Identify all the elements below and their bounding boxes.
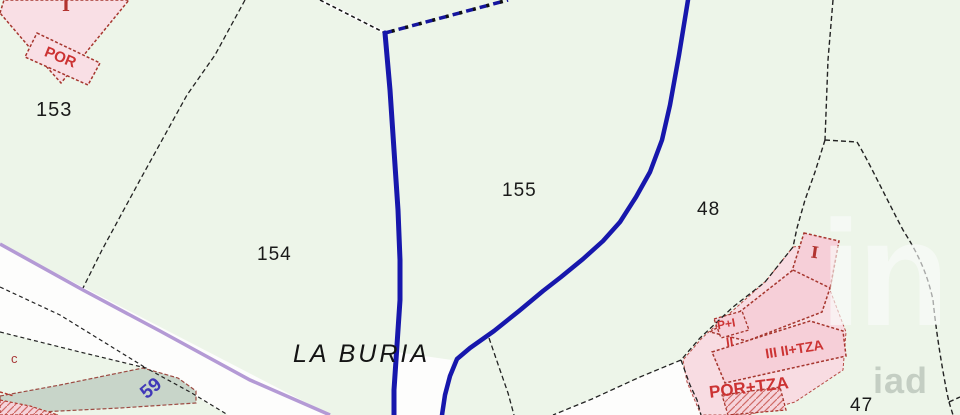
map-canvas	[0, 0, 960, 415]
cadastral-map[interactable]: in 153 154 155 48 47 LA BURIA I POR I P+…	[0, 0, 960, 415]
